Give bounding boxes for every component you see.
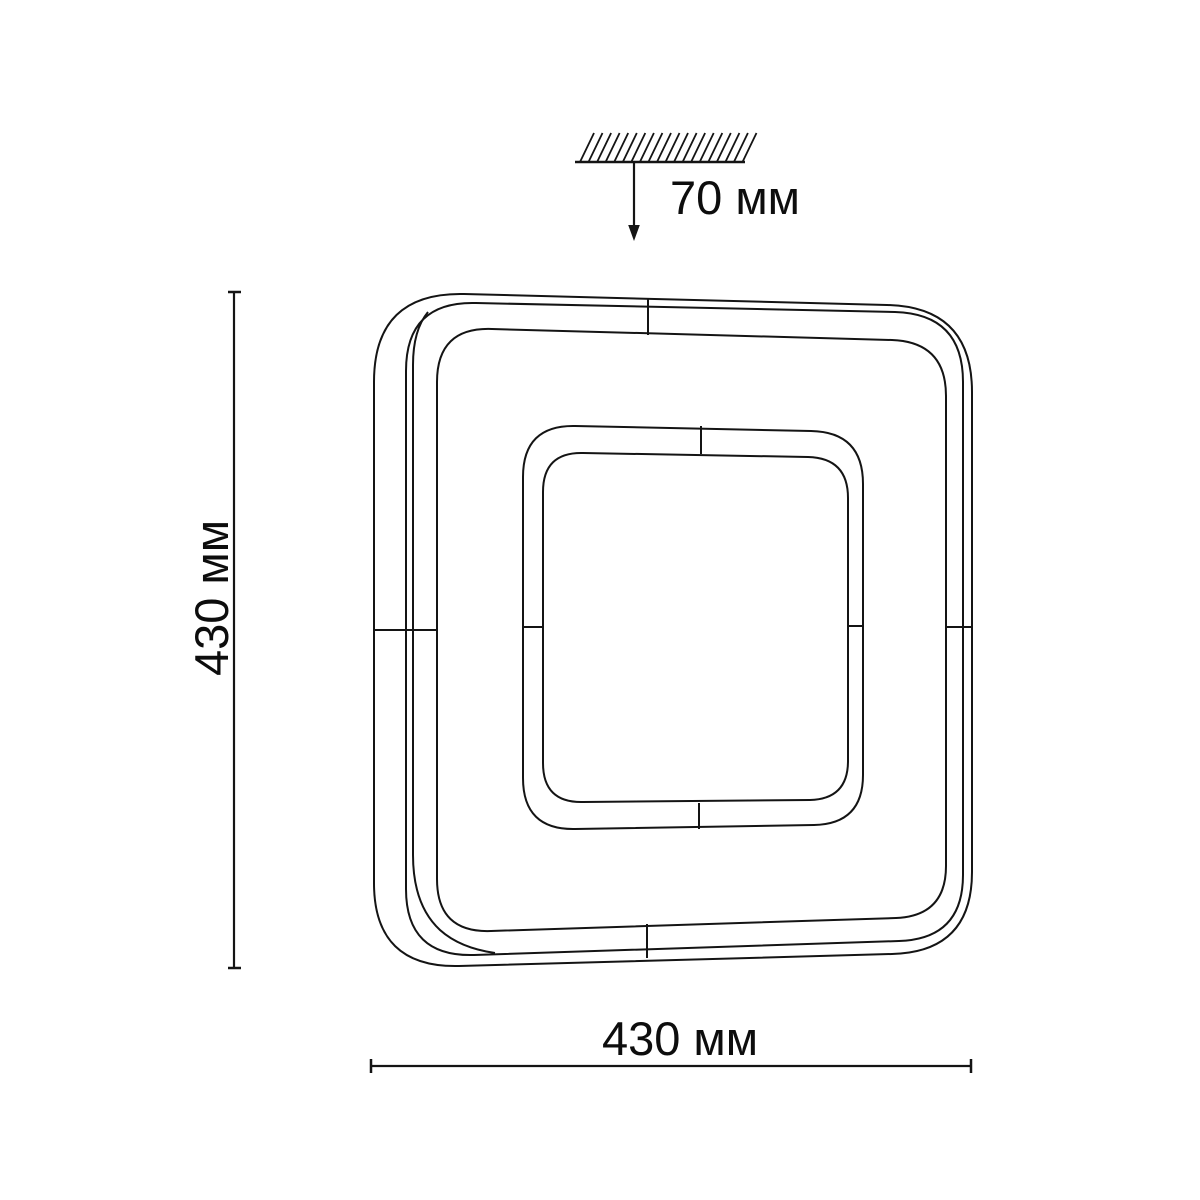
ceiling-hatch-stroke bbox=[597, 133, 611, 162]
ceiling-hatch-stroke bbox=[640, 133, 654, 162]
ceiling-hatch-stroke bbox=[580, 133, 594, 162]
inner-ring-outer-outline bbox=[523, 426, 863, 829]
ceiling-hatch-stroke bbox=[674, 133, 688, 162]
ceiling-hatch-icon bbox=[580, 133, 757, 162]
ceiling-hatch-stroke bbox=[648, 133, 662, 162]
ceiling-hatch-stroke bbox=[666, 133, 680, 162]
outer-frame-outline-3 bbox=[437, 329, 946, 931]
ceiling-hatch-stroke bbox=[734, 133, 748, 162]
ceiling-hatch-stroke bbox=[708, 133, 722, 162]
ceiling-hatch-stroke bbox=[683, 133, 697, 162]
dimension-drawing: 70 мм 430 мм 430 мм bbox=[0, 0, 1200, 1200]
fixture-outer-frame bbox=[373, 294, 972, 966]
ceiling-hatch-stroke bbox=[606, 133, 620, 162]
ceiling-hatch-stroke bbox=[700, 133, 714, 162]
fixture-width-label: 430 мм bbox=[602, 1012, 758, 1065]
ceiling-hatch-stroke bbox=[631, 133, 645, 162]
ceiling-hatch-stroke bbox=[691, 133, 705, 162]
height-dimension: 430 мм bbox=[185, 292, 241, 968]
outer-frame-outline-2 bbox=[406, 303, 963, 955]
ceiling-hatch-stroke bbox=[589, 133, 603, 162]
ceiling-mount-symbol: 70 мм bbox=[575, 133, 800, 241]
ceiling-hatch-stroke bbox=[623, 133, 637, 162]
width-dimension: 430 мм bbox=[371, 1012, 971, 1073]
ceiling-offset-label: 70 мм bbox=[670, 171, 800, 224]
offset-arrow-icon bbox=[628, 163, 640, 241]
ceiling-hatch-stroke bbox=[743, 133, 757, 162]
fixture-inner-ring bbox=[522, 426, 864, 829]
outer-frame-depth-edge bbox=[413, 312, 495, 953]
fixture-height-label: 430 мм bbox=[185, 520, 238, 676]
ceiling-hatch-stroke bbox=[717, 133, 731, 162]
ceiling-hatch-stroke bbox=[657, 133, 671, 162]
offset-arrow-head bbox=[628, 225, 640, 241]
drawing-svg: 70 мм 430 мм 430 мм bbox=[0, 0, 1200, 1200]
ceiling-hatch-stroke bbox=[614, 133, 628, 162]
ceiling-hatch-stroke bbox=[725, 133, 739, 162]
outer-frame-outline-1 bbox=[374, 294, 972, 966]
inner-ring-inner-outline bbox=[543, 453, 848, 802]
